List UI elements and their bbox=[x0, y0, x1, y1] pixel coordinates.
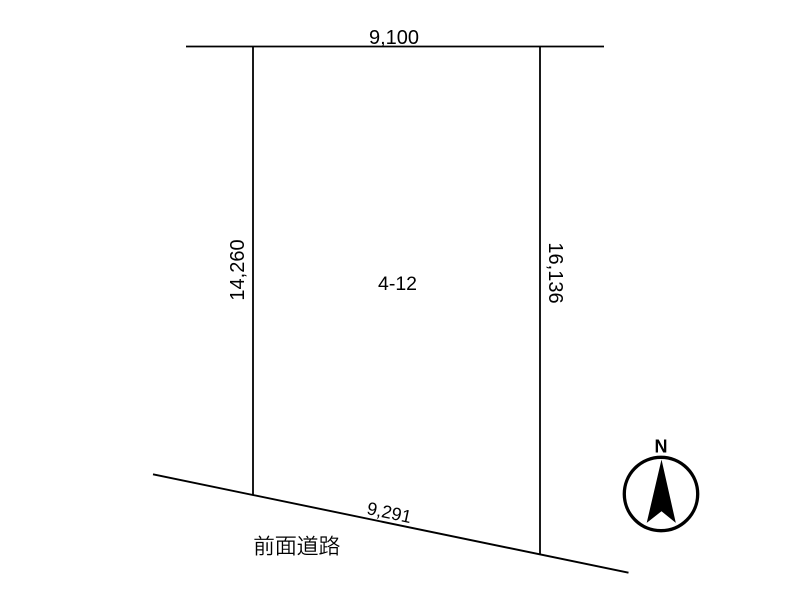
svg-text:9,100: 9,100 bbox=[369, 27, 419, 49]
svg-text:4-12: 4-12 bbox=[378, 273, 417, 295]
svg-text:16,136: 16,136 bbox=[544, 242, 566, 303]
svg-text:14,260: 14,260 bbox=[227, 239, 249, 300]
svg-text:N: N bbox=[655, 437, 668, 457]
